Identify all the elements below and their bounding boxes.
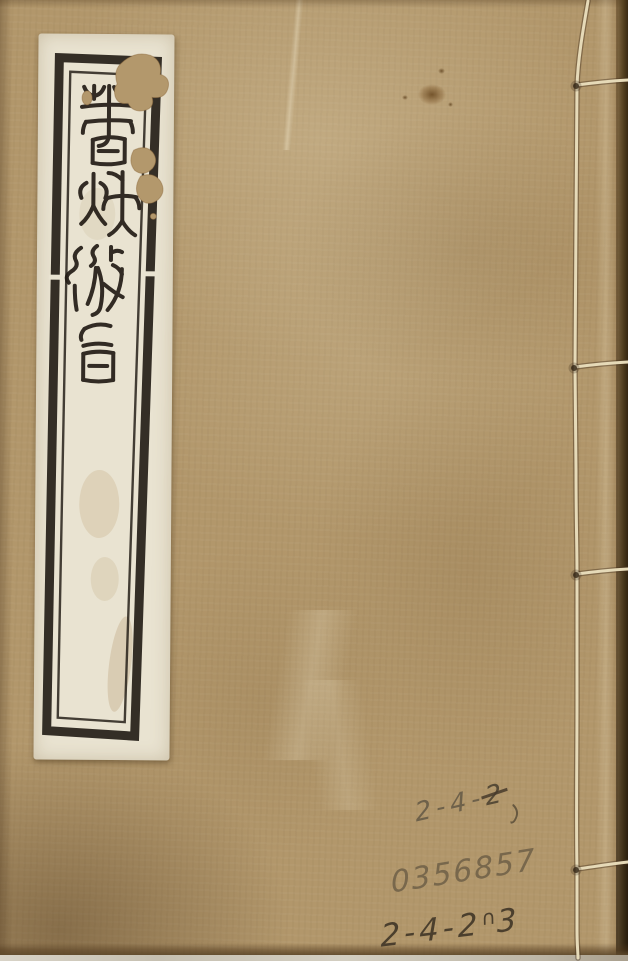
book-cover: 春秋微旨 — [0, 0, 628, 961]
accession-number: 0356857 — [390, 842, 538, 900]
char-zhi — [81, 324, 114, 381]
char-wei — [66, 246, 123, 315]
shelf-mark-top-struck-digit: 2 — [483, 778, 508, 813]
shelf-mark-bottom-suffix: 3 — [497, 901, 521, 940]
bottom-page-edges — [0, 955, 628, 961]
stain-speck — [438, 68, 445, 74]
book-cover-photo: 春秋微旨 — [0, 0, 628, 961]
stain-speck — [448, 102, 453, 107]
shelf-mark-squiggle: ∩ — [481, 904, 497, 930]
ink-stain — [410, 78, 450, 108]
label-stains — [76, 188, 140, 713]
title-label: 春秋微旨 — [33, 34, 174, 761]
stain-speck — [402, 95, 408, 100]
right-fold-highlight — [596, 0, 618, 961]
title-label-art — [33, 34, 174, 761]
shelf-mark-top-prefix: 2-4- — [413, 782, 487, 828]
stitch-holes — [569, 81, 582, 876]
pencil-scribble — [508, 801, 524, 826]
shelf-mark-top: 2-4-2 — [413, 778, 508, 829]
book-right-edge — [616, 0, 628, 961]
